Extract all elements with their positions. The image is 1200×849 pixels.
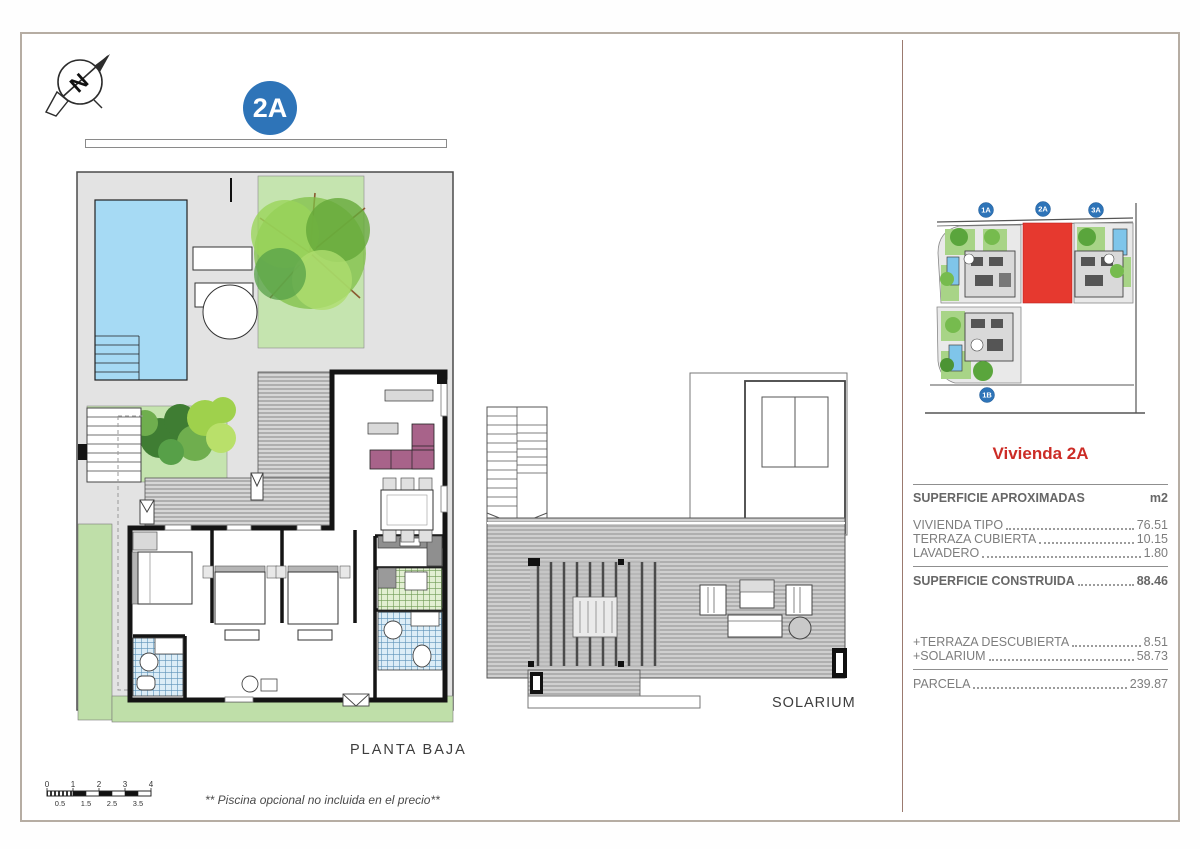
dotted-leader (989, 659, 1134, 661)
dotted-leader (982, 556, 1140, 558)
table-row: +SOLARIUM 58.73 (913, 649, 1168, 663)
panel-divider-line (902, 40, 903, 812)
deck-door-marker (832, 648, 847, 678)
svg-text:1: 1 (71, 780, 76, 789)
site-lot-3a (1074, 223, 1133, 303)
row-value: 58.73 (1137, 649, 1168, 663)
svg-text:3.5: 3.5 (133, 799, 143, 808)
site-lot-2a-highlight (1023, 223, 1072, 303)
bathroom-2 (378, 612, 442, 670)
scale-unit-ticks (47, 788, 151, 791)
table-subtotal-row: SUPERFICIE CONSTRUIDA 88.46 (913, 567, 1168, 595)
table-header-label: SUPERFICIE APROXIMADAS (913, 491, 1085, 505)
bathroom-1 (133, 638, 183, 696)
row-value: 76.51 (1137, 518, 1168, 532)
garden-strip-left (78, 524, 112, 720)
scale-segments (47, 791, 151, 796)
row-value: 10.15 (1137, 532, 1168, 546)
svg-text:4: 4 (149, 780, 154, 789)
svg-text:2: 2 (97, 780, 102, 789)
round-table (203, 285, 257, 339)
header-bar (85, 139, 447, 148)
north-arrow-icon: N (42, 46, 126, 130)
pergola (528, 558, 660, 668)
site-plan-drawing: 1A 2A 3A 1B (925, 195, 1145, 420)
row-value: 88.46 (1137, 574, 1168, 588)
solarium-label: SOLARIUM (772, 695, 856, 711)
dotted-leader (1072, 645, 1140, 647)
row-label: TERRAZA CUBIERTA (913, 532, 1036, 546)
dotted-leader (1039, 542, 1134, 544)
site-badge-1b: 1B (982, 391, 992, 400)
laundry-room (378, 568, 442, 610)
surface-table: SUPERFICIE APROXIMADAS m2 VIVIENDA TIPO … (913, 484, 1168, 698)
dotted-leader (973, 687, 1126, 689)
scale-bar: 0 1 2 3 4 0.5 1.5 2.5 3.5 (42, 778, 172, 810)
table-row: +TERRAZA DESCUBIERTA 8.51 (913, 635, 1168, 649)
wall-block (437, 372, 447, 384)
scale-ticks-bottom: 0.5 1.5 2.5 3.5 (55, 799, 143, 808)
row-label: LAVADERO (913, 546, 979, 560)
table-row: TERRAZA CUBIERTA 10.15 (913, 532, 1168, 546)
row-value: 239.87 (1130, 677, 1168, 691)
unit-badge-label: 2A (253, 93, 288, 124)
table-row: VIVIENDA TIPO 76.51 (913, 518, 1168, 532)
site-badge-3a: 3A (1091, 206, 1101, 215)
plan-sheet: N 2A (0, 0, 1200, 849)
row-label: SUPERFICIE CONSTRUIDA (913, 574, 1075, 588)
table-header: SUPERFICIE APROXIMADAS m2 (913, 485, 1168, 518)
table-total-row: PARCELA 239.87 (913, 670, 1168, 698)
dotted-leader (1006, 528, 1134, 530)
floor-plan-label: PLANTA BAJA (350, 742, 467, 758)
dining-area (381, 478, 433, 542)
table-header-unit: m2 (1150, 491, 1168, 505)
svg-text:1.5: 1.5 (81, 799, 91, 808)
unit-title: Vivienda 2A (913, 444, 1168, 464)
svg-text:2.5: 2.5 (107, 799, 117, 808)
dotted-leader (1078, 584, 1134, 586)
row-label: PARCELA (913, 677, 970, 691)
row-label: +TERRAZA DESCUBIERTA (913, 635, 1069, 649)
site-lot-1b (937, 307, 1021, 383)
floor-plan-drawing (75, 168, 457, 728)
row-value: 1.80 (1144, 546, 1168, 560)
unit-badge: 2A (243, 81, 297, 135)
upper-room (690, 373, 847, 535)
solarium-stairs (487, 407, 547, 525)
site-lot-1a (938, 225, 1021, 303)
table-row: LAVADERO 1.80 (913, 546, 1168, 560)
row-label: +SOLARIUM (913, 649, 986, 663)
svg-text:3: 3 (123, 780, 128, 789)
scale-ticks-top: 0 1 2 3 4 (45, 780, 154, 789)
site-badge-1a: 1A (981, 206, 991, 215)
site-badge-2a: 2A (1038, 205, 1048, 214)
solarium-plan-drawing (470, 365, 880, 715)
svg-text:0: 0 (45, 780, 50, 789)
swimming-pool (95, 200, 187, 380)
svg-text:0.5: 0.5 (55, 799, 65, 808)
exterior-stairs (78, 408, 141, 482)
pool-disclaimer: ** Piscina opcional no incluida en el pr… (205, 793, 465, 807)
row-value: 8.51 (1144, 635, 1168, 649)
row-label: VIVIENDA TIPO (913, 518, 1003, 532)
